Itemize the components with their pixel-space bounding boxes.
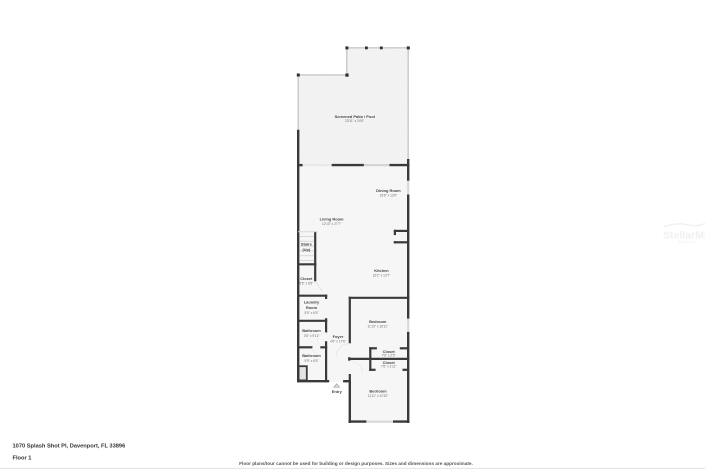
svg-text:3'5" x 9'11": 3'5" x 9'11" [304, 334, 319, 338]
svg-text:Entry: Entry [332, 389, 343, 394]
svg-text:Stellar MLS: Stellar MLS [678, 240, 696, 244]
svg-text:Bathroom: Bathroom [302, 353, 321, 358]
svg-text:23'11" x 24'9": 23'11" x 24'9" [345, 119, 364, 123]
svg-text:Room: Room [306, 305, 318, 310]
svg-text:5'9" x 6'5": 5'9" x 6'5" [305, 359, 319, 363]
svg-text:Bedroom: Bedroom [369, 319, 387, 324]
svg-text:11'10" x 16'11": 11'10" x 16'11" [368, 324, 389, 328]
svg-text:16'2" x 13'7": 16'2" x 13'7" [373, 274, 390, 278]
svg-text:5'9" x 6'5": 5'9" x 6'5" [305, 311, 319, 315]
svg-text:Floor plans/tour cannot be use: Floor plans/tour cannot be used for buil… [239, 461, 473, 466]
svg-text:7'6" x 2'5": 7'6" x 2'5" [382, 354, 396, 358]
svg-text:1070 Splash Shot Pl, Davenport: 1070 Splash Shot Pl, Davenport, FL 33896 [13, 444, 126, 450]
svg-text:12'10" x 27'7": 12'10" x 27'7" [322, 222, 341, 226]
svg-text:Foyer: Foyer [333, 334, 344, 339]
svg-text:Bedroom: Bedroom [369, 389, 387, 394]
svg-text:11'11" x 12'10": 11'11" x 12'10" [368, 394, 389, 398]
svg-text:Floor 1: Floor 1 [13, 455, 32, 461]
svg-text:(Up): (Up) [302, 247, 311, 252]
svg-text:Living Room: Living Room [320, 216, 344, 221]
svg-text:5'5" x 6'5": 5'5" x 6'5" [299, 282, 313, 286]
svg-text:7'6" x 1'11": 7'6" x 1'11" [381, 365, 396, 369]
svg-text:Dining Room: Dining Room [376, 188, 401, 193]
svg-text:Closet: Closet [300, 276, 313, 281]
svg-text:4'6" x 17'6": 4'6" x 17'6" [330, 340, 346, 344]
svg-text:Bathroom: Bathroom [302, 328, 321, 333]
svg-text:Kitchen: Kitchen [374, 268, 389, 273]
svg-text:16'6" x 13'9": 16'6" x 13'9" [380, 193, 397, 197]
